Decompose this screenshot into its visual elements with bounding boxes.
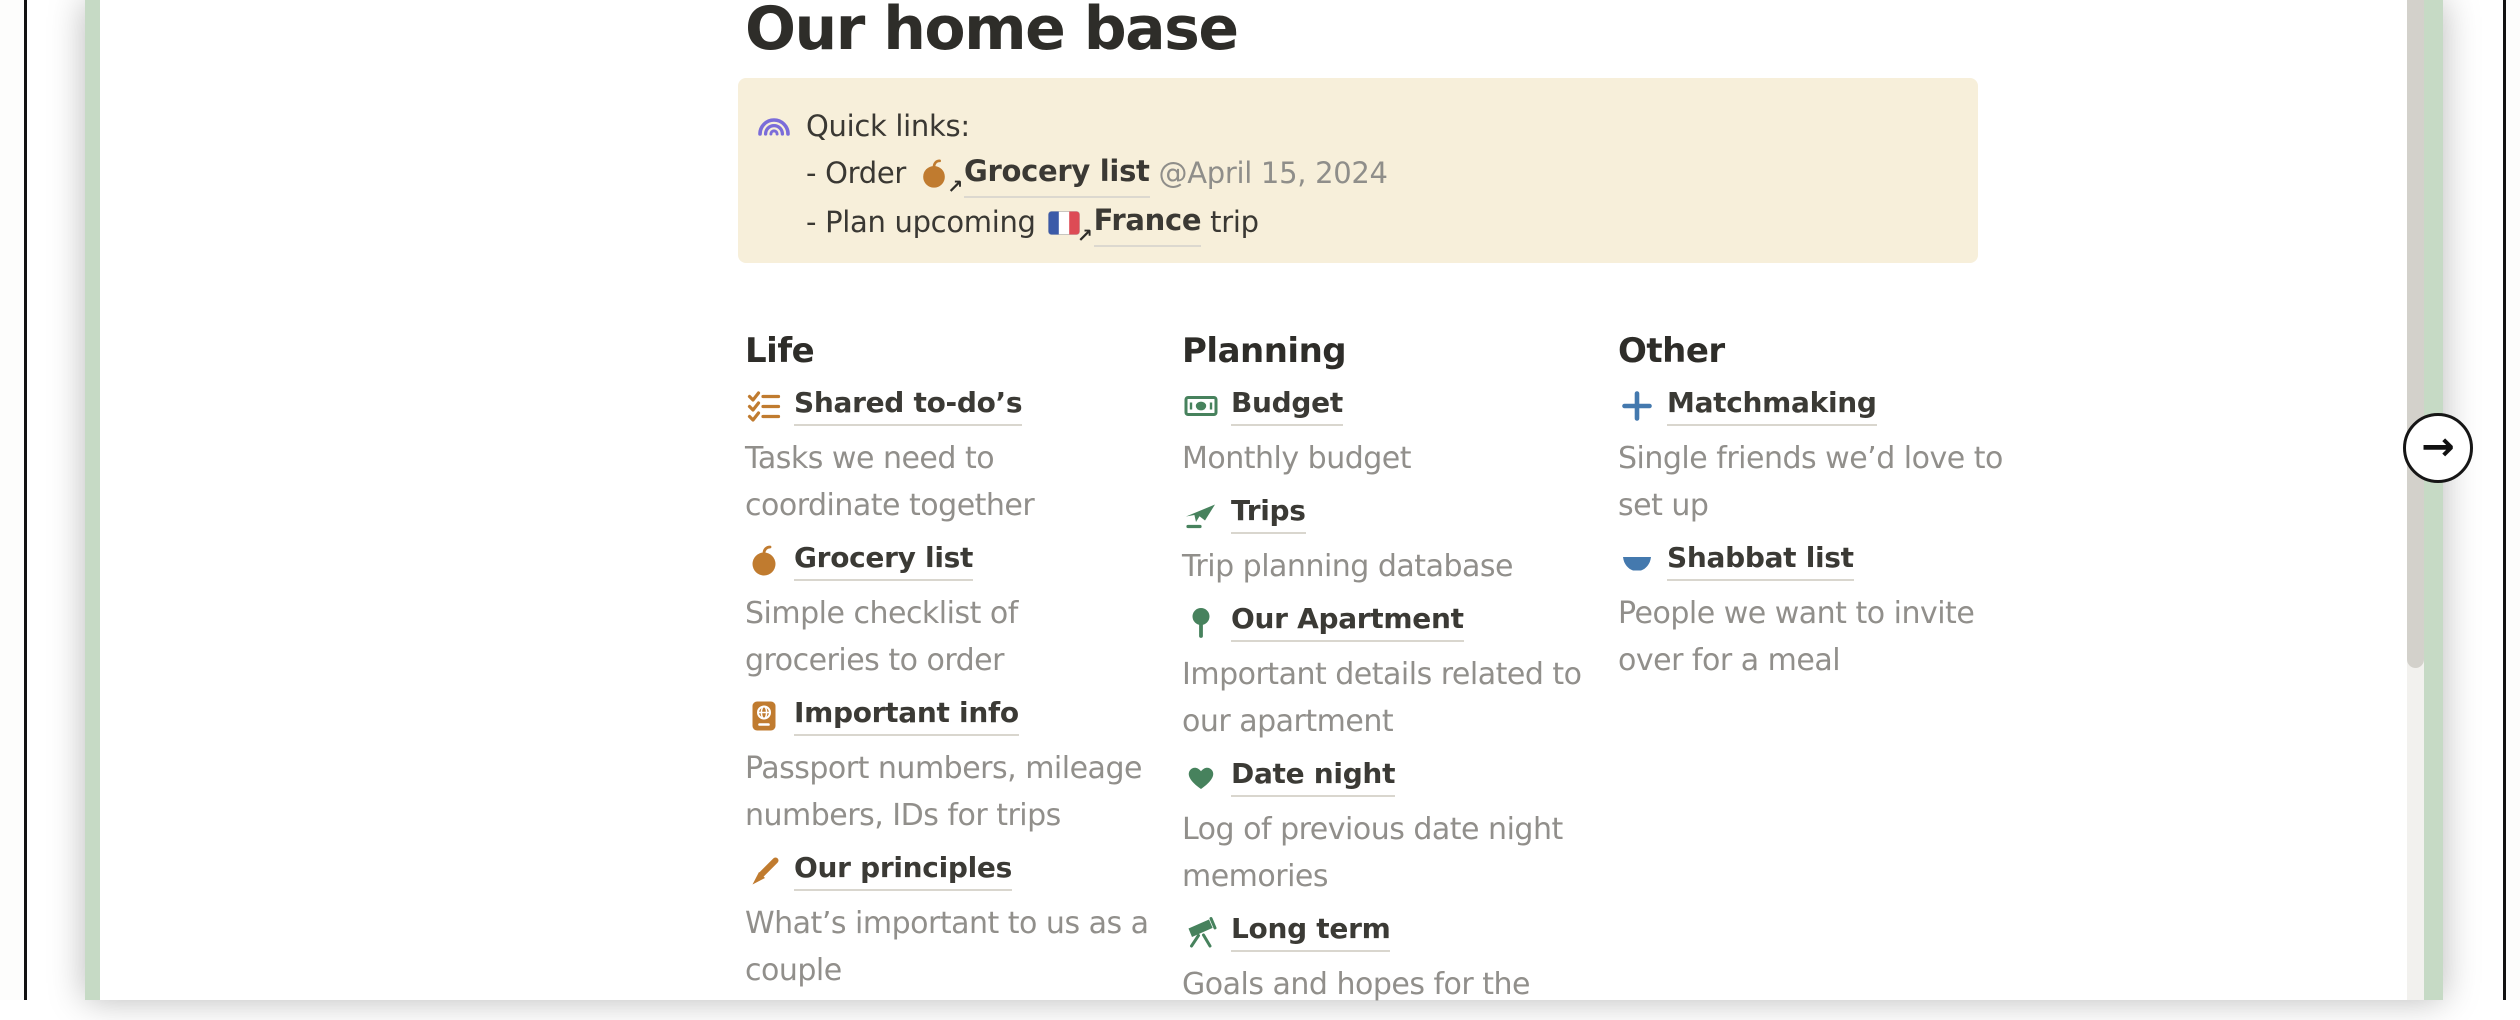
quick-links-callout: Quick links: - Order ↗ Grocery list @Apr…	[738, 78, 1978, 263]
item-label[interactable]: Trips	[1231, 494, 1306, 534]
rainbow-icon	[755, 106, 793, 144]
item-label[interactable]: Our principles	[794, 851, 1012, 891]
quick-link-suffix: trip	[1201, 200, 1258, 245]
item-label[interactable]: Budget	[1231, 386, 1343, 426]
item-description: What’s important to us as a couple	[745, 900, 1177, 994]
item-link-long-term[interactable]: Long term	[1182, 912, 1614, 952]
item-description: Tasks we need to coordinate together	[745, 435, 1177, 529]
right-arrow-icon: →	[2421, 427, 2455, 467]
item-description: Important details related to our apartme…	[1182, 651, 1614, 745]
item-description: Goals and hopes for the	[1182, 961, 1614, 1008]
france-link[interactable]: France	[1094, 198, 1202, 247]
scrollbar-thumb[interactable]	[2407, 0, 2424, 668]
previous-card-edge[interactable]	[0, 0, 27, 1000]
column-other: Other Matchmaking Single friends we’d lo…	[1618, 330, 2050, 696]
plus-icon	[1620, 389, 1654, 423]
column-planning: Planning Budget Monthly budget Trips Tri…	[1182, 330, 1614, 1020]
item-link-shabbat-list[interactable]: Shabbat list	[1618, 541, 2050, 581]
passport-icon	[747, 699, 781, 733]
quick-link-prefix: - Order	[806, 151, 906, 196]
next-button[interactable]: →	[2403, 413, 2473, 483]
page-title: Our home base	[745, 0, 1238, 60]
quick-link-row-france: - Plan upcoming ↗ France trip	[806, 198, 1954, 247]
next-card-edge[interactable]	[2503, 0, 2520, 1000]
date-mention: @April 15, 2024	[1150, 151, 1388, 196]
quick-link-row-grocery: - Order ↗ Grocery list @April 15, 2024	[806, 149, 1954, 198]
item-label[interactable]: Grocery list	[794, 541, 973, 581]
item-description: Simple checklist of groceries to order	[745, 590, 1177, 684]
item-description: Passport numbers, mileage numbers, IDs f…	[745, 745, 1177, 839]
apple-icon: ↗	[918, 158, 950, 190]
item-link-shared-todos[interactable]: Shared to-do’s	[745, 386, 1177, 426]
item-link-grocery-list[interactable]: Grocery list	[745, 541, 1177, 581]
france-flag-icon: ↗	[1048, 207, 1080, 239]
item-label[interactable]: Date night	[1231, 757, 1395, 797]
item-link-our-principles[interactable]: Our principles	[745, 851, 1177, 891]
banknote-icon	[1184, 389, 1218, 423]
column-header-planning: Planning	[1182, 330, 1614, 372]
item-link-our-apartment[interactable]: Our Apartment	[1182, 602, 1614, 642]
item-label[interactable]: Shared to-do’s	[794, 386, 1022, 426]
checklist-icon	[747, 389, 781, 423]
round-pin-icon	[1184, 605, 1218, 639]
scrollbar-track[interactable]	[2407, 0, 2424, 1000]
telescope-icon	[1184, 915, 1218, 949]
item-label[interactable]: Shabbat list	[1667, 541, 1854, 581]
item-link-trips[interactable]: Trips	[1182, 494, 1614, 534]
pen-icon	[747, 854, 781, 888]
column-header-other: Other	[1618, 330, 2050, 372]
template-page: Our home base Quick links: - Order ↗ Gro…	[100, 0, 2423, 1000]
item-label[interactable]: Long term	[1231, 912, 1390, 952]
quick-link-prefix: - Plan upcoming	[806, 200, 1036, 245]
item-description: Log of previous date night memories	[1182, 806, 1614, 900]
item-description: People we want to invite over for a meal	[1618, 590, 2050, 684]
grocery-list-link[interactable]: Grocery list	[964, 149, 1150, 198]
item-link-matchmaking[interactable]: Matchmaking	[1618, 386, 2050, 426]
column-life: Life Shared to-do’s Tasks we need to coo…	[745, 330, 1177, 1006]
apple-icon	[747, 544, 781, 578]
bowl-icon	[1620, 544, 1654, 578]
item-label[interactable]: Our Apartment	[1231, 602, 1464, 642]
link-out-arrow-icon: ↗	[947, 178, 963, 197]
item-link-date-night[interactable]: Date night	[1182, 757, 1614, 797]
column-header-life: Life	[745, 330, 1177, 372]
item-description: Trip planning database	[1182, 543, 1614, 590]
airplane-icon	[1184, 497, 1218, 531]
item-description: Single friends we’d love to set up	[1618, 435, 2050, 529]
link-out-arrow-icon: ↗	[1077, 227, 1093, 246]
template-preview-card: Our home base Quick links: - Order ↗ Gro…	[85, 0, 2443, 1000]
item-description: Monthly budget	[1182, 435, 1614, 482]
item-link-budget[interactable]: Budget	[1182, 386, 1614, 426]
item-label[interactable]: Matchmaking	[1667, 386, 1877, 426]
callout-heading: Quick links:	[806, 104, 1954, 149]
green-heart-icon	[1184, 760, 1218, 794]
item-link-important-info[interactable]: Important info	[745, 696, 1177, 736]
item-label[interactable]: Important info	[794, 696, 1019, 736]
